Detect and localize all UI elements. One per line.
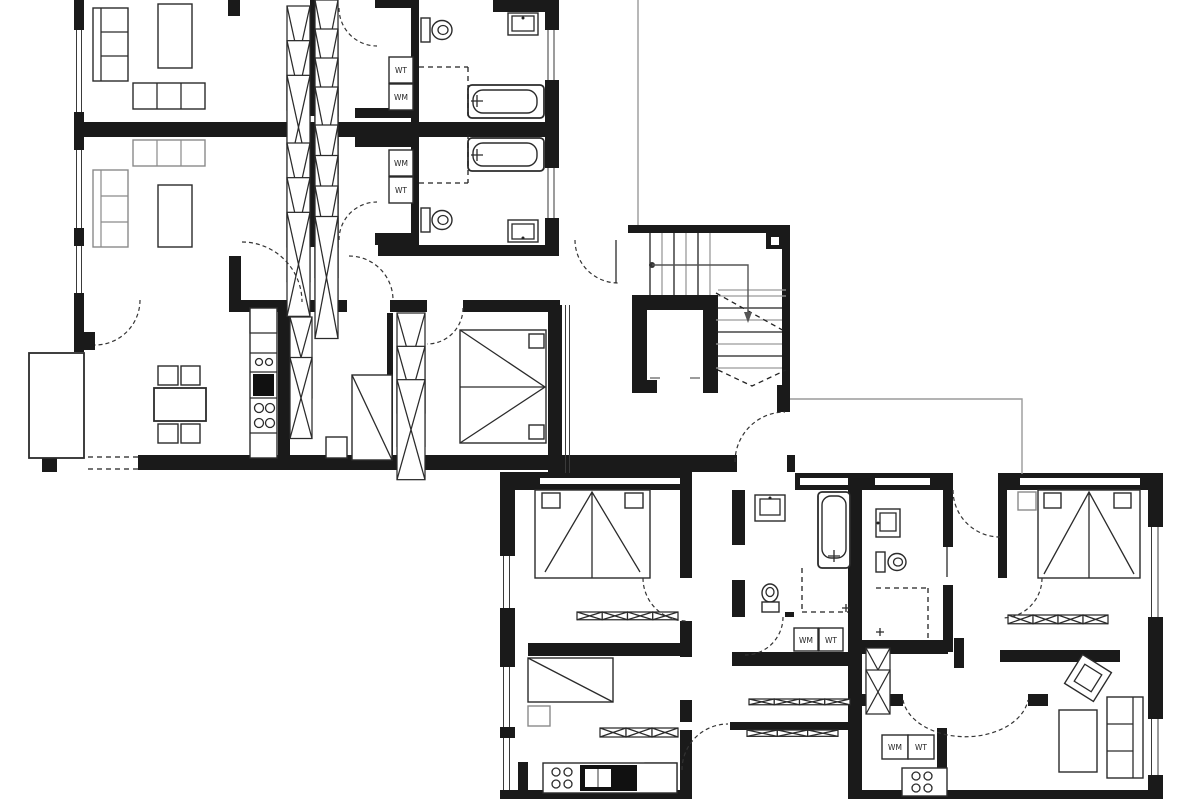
- sink-icon: [508, 220, 538, 242]
- sink-icon: [755, 495, 785, 521]
- wardrobe-x-icon: [287, 143, 310, 316]
- wardrobe-x-icon: [749, 699, 850, 705]
- floor-plan-page: WT WM WM WT WM WT WM WT: [0, 0, 1200, 799]
- sofa-icon: [1107, 697, 1143, 778]
- floor-plan-drawing: WT WM WM WT WM WT WM WT: [0, 0, 1200, 799]
- boundary-lines: [638, 0, 1022, 474]
- sofa-icon: [93, 170, 128, 247]
- dining-table-icon: [154, 366, 206, 443]
- nightstand-icon: [528, 706, 550, 726]
- label-wt: WT: [395, 66, 407, 75]
- nightstand-icon: [1018, 492, 1036, 510]
- pillow-icon: [542, 493, 560, 508]
- partition-line: [566, 305, 570, 473]
- bathtub-icon: [468, 85, 544, 118]
- label-wm: WM: [888, 743, 902, 752]
- single-bed-icon: [528, 658, 613, 726]
- wardrobe-x-icon: [315, 125, 338, 339]
- pillow-icon: [529, 425, 544, 439]
- pillow-icon: [1044, 493, 1061, 508]
- fridge-icon: [253, 374, 274, 396]
- nightstand-icon: [326, 437, 347, 458]
- pillow-icon: [625, 493, 643, 508]
- toilet-icon: [762, 584, 779, 612]
- balcony-door-threshold: [88, 457, 138, 469]
- double-bed-icon: [460, 330, 546, 443]
- toilet-icon: [421, 208, 452, 232]
- shower-icon: [419, 134, 468, 183]
- label-wm: WM: [799, 636, 813, 645]
- sideboard-icon: [133, 83, 205, 109]
- pillow-icon: [1114, 493, 1131, 508]
- chair-icon: [181, 424, 200, 443]
- kitchen-counter-icon: [250, 308, 277, 458]
- wardrobe-x-icon: [1008, 615, 1108, 624]
- sink-icon: [508, 13, 538, 35]
- wardrobe-x-icon: [747, 730, 838, 736]
- shower-icon: [876, 588, 928, 638]
- shower-icon: [802, 568, 850, 612]
- label-wt: WT: [825, 636, 837, 645]
- double-bed-icon: [535, 490, 650, 578]
- toilet-icon: [421, 18, 452, 42]
- chair-icon: [158, 424, 178, 443]
- kitchen-counter-icon: [543, 763, 677, 793]
- label-wt: WT: [395, 186, 407, 195]
- sideboard-icon: [133, 140, 205, 166]
- label-wm: WM: [394, 93, 408, 102]
- wardrobe-x-icon: [866, 648, 890, 714]
- chair-icon: [158, 366, 178, 385]
- label-wt: WT: [915, 743, 927, 752]
- label-wm: WM: [394, 159, 408, 168]
- sofa-icon: [93, 8, 128, 81]
- double-bed-icon: [1018, 490, 1140, 578]
- shower-icon: [419, 67, 468, 116]
- stove-icon: [902, 768, 947, 796]
- coffee-table-icon: [158, 185, 192, 247]
- chair-icon: [181, 366, 200, 385]
- toilet-icon: [876, 552, 906, 572]
- coffee-table-icon: [158, 4, 192, 68]
- coffee-table-icon: [1059, 710, 1097, 772]
- wardrobe-x-icon: [600, 728, 678, 737]
- balcony-icon: [29, 353, 84, 458]
- bathtub-icon: [818, 492, 850, 568]
- bathtub-icon: [468, 138, 544, 171]
- pillow-icon: [529, 334, 544, 348]
- wardrobe-x-icon: [397, 313, 425, 480]
- single-bed-icon: [326, 375, 392, 460]
- sink-icon: [876, 509, 900, 537]
- windows: [77, 30, 1159, 790]
- wardrobe-x-icon: [577, 612, 678, 620]
- wardrobe-x-icon: [290, 317, 312, 439]
